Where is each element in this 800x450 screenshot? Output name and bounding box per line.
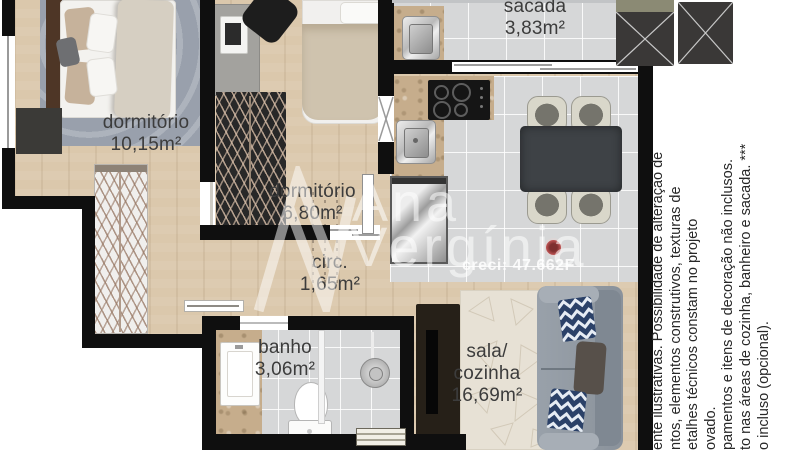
shelf-rail — [184, 300, 244, 312]
disclaimer-line: pamentos e itens de decoração não inclus… — [720, 0, 738, 450]
cooktop-knob — [480, 105, 483, 108]
wall — [202, 434, 466, 450]
shaft-x — [378, 96, 394, 142]
shelf-rail-line — [187, 305, 239, 307]
wall — [202, 316, 216, 450]
disclaimer-line: etalhes técnicos constam no projeto — [685, 0, 703, 450]
door-opening — [240, 316, 288, 330]
sacada-sink — [402, 16, 440, 60]
dining-table — [520, 126, 622, 192]
door-leaf — [240, 322, 288, 324]
cooktop-knob — [480, 87, 483, 90]
chevron-pillow — [547, 388, 588, 432]
cooktop-knob — [480, 96, 483, 99]
nightstand — [16, 108, 62, 154]
sofa-armrest — [539, 433, 599, 450]
bed-blanket — [114, 0, 174, 119]
window-glass-line — [7, 36, 9, 148]
sliding-door-panel — [454, 64, 552, 66]
burner — [454, 103, 468, 117]
burner — [452, 83, 471, 102]
room-name: dormitório — [70, 112, 222, 134]
floor-plan-canvas: dormitório 10,15m² dormitório 6,80m² cir… — [0, 0, 800, 450]
wall — [82, 334, 216, 348]
burner — [433, 101, 451, 119]
burner — [434, 85, 449, 100]
watermark-creci: creci: 47.662F — [462, 257, 575, 275]
niche-shelf — [356, 428, 406, 446]
room-label-sala-cozinha: sala/ cozinha 16,69m² — [427, 341, 547, 407]
sink-basin — [409, 24, 433, 54]
sofa-throw — [573, 341, 607, 395]
kitchen-sink — [396, 120, 436, 164]
disclaimer-line: ntos, elementos construtivos, texturas d… — [668, 0, 686, 450]
room-label-banho: banho 3,06m² — [225, 337, 345, 381]
wall — [82, 196, 95, 348]
room-name: sala/ — [427, 341, 547, 363]
room-label-sacada: sacada 3,83m² — [465, 0, 605, 40]
room-area: 10,15m² — [70, 134, 222, 156]
wall — [378, 0, 394, 174]
disclaimer-line: to nas áreas de cozinha, banheiro e saca… — [738, 0, 756, 450]
sliding-glass-door — [452, 62, 638, 72]
room-name: cozinha — [427, 363, 547, 385]
cooktop — [428, 80, 490, 120]
window — [2, 36, 15, 148]
wardrobe-top — [95, 165, 147, 172]
laptop-keyboard — [225, 23, 241, 45]
sofa — [537, 286, 623, 450]
room-name: banho — [225, 337, 345, 359]
pillow — [85, 12, 118, 54]
shower-head-center — [369, 367, 383, 381]
window-shaft — [378, 96, 394, 142]
wall — [2, 196, 94, 209]
shower-head — [360, 358, 390, 388]
room-area: 3,83m² — [465, 18, 605, 40]
disclaimer-text: ente ilustrativas. Possibilidade de alte… — [650, 0, 774, 450]
wardrobe-rod — [119, 172, 121, 332]
disclaimer-line: ente ilustrativas. Possibilidade de alte… — [650, 0, 668, 450]
wardrobe-open — [94, 164, 148, 334]
room-label-dormitorio-1: dormitório 10,15m² — [70, 112, 222, 156]
bed-duvet — [302, 24, 384, 120]
door-leaf — [210, 182, 213, 230]
av-monogram-logo — [246, 166, 358, 312]
pillow — [86, 56, 118, 97]
sink-basin — [404, 128, 429, 158]
room-area: 16,69m² — [427, 385, 547, 407]
disclaimer-line: o incluso (opcional). — [756, 0, 774, 450]
chevron-pillow — [557, 296, 597, 342]
sliding-door-panel — [540, 68, 636, 70]
room-name: sacada — [465, 0, 605, 18]
sink-drain — [413, 138, 418, 143]
outside-area — [0, 206, 82, 348]
outside-area — [0, 346, 204, 450]
disclaimer-line: ovado. — [703, 0, 721, 450]
wall — [202, 316, 414, 330]
room-area: 3,06m² — [225, 359, 345, 381]
door-opening — [200, 182, 215, 230]
